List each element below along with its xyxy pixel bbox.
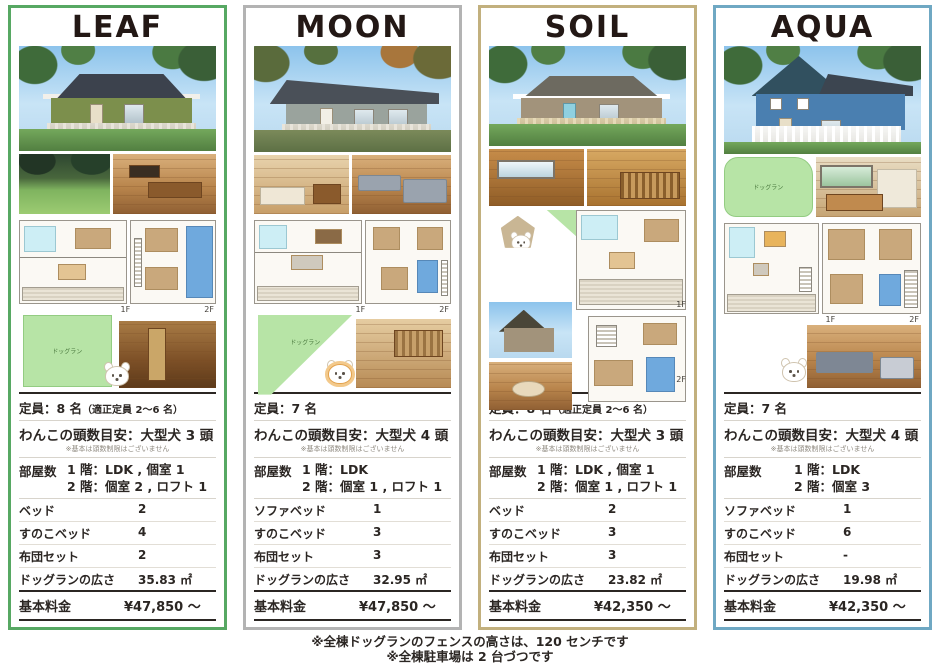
moon-loft-photo	[356, 319, 451, 388]
footer-notes: ※全棟ドッグランのフェンスの高さは、120 センチです ※全棟駐車場は 2 台づ…	[0, 634, 940, 664]
floor-label-2f: 2F	[439, 305, 449, 314]
dog-in-house-mascot-icon	[501, 216, 535, 248]
spec-row-futon: 布団セット2	[19, 545, 216, 568]
plan-table	[58, 264, 86, 280]
gable-window	[797, 98, 809, 110]
rooms-2f: 2 階：個室 2 , ロフト 1	[67, 478, 207, 495]
price-label: 基本料金	[254, 596, 359, 615]
plan-deck	[727, 294, 816, 312]
leaf-exterior-photo	[19, 46, 216, 151]
aqua-living-photo	[807, 325, 921, 388]
floor-label-2f: 2F	[204, 305, 214, 314]
kitchen-window	[820, 165, 873, 189]
rooms-row: 部屋数 1 階：LDK 2 階：個室 1 , ロフト 1	[254, 458, 451, 499]
price-value: ¥42,350 〜	[829, 596, 921, 615]
price-row: 基本料金¥42,350 〜	[489, 590, 686, 621]
wall-tv	[129, 165, 160, 178]
leaf-dogrun-photo	[19, 154, 110, 214]
spec-row-dogrun-size: ドッグランの広さ23.82 ㎡	[489, 568, 686, 591]
plan-deck	[257, 286, 359, 301]
floor-labels: 1F 2F	[19, 304, 216, 314]
plan-bed	[373, 227, 400, 250]
interior-door	[148, 328, 165, 382]
dogs-value: わんこの頭数目安：大型犬 3 頭	[19, 424, 216, 444]
plan-deck	[22, 287, 124, 302]
floor-label-1f: 1F	[356, 305, 366, 314]
lawn-strip	[489, 124, 686, 146]
rooms-1f: 1 階：LDK	[302, 461, 442, 478]
rooms-2f: 2 階：個室 1 , ロフト 1	[537, 478, 677, 495]
spec-row-sunoko: すのこベッド3	[254, 522, 451, 545]
plan-bathroom	[729, 227, 755, 257]
floor-label-1f: 1F	[826, 315, 836, 324]
aqua-exterior-photo	[724, 46, 921, 154]
rooms-label: 部屋数	[489, 461, 537, 495]
plan-bathroom	[24, 226, 56, 252]
round-table	[512, 381, 545, 397]
spec-row-futon: 布団セット-	[724, 545, 921, 568]
dogs-note: ※基本は頭数制限はございません	[19, 444, 216, 456]
card-soil: SOIL ドッグラン	[478, 5, 697, 630]
plan-bed	[879, 229, 912, 259]
rooms-label: 部屋数	[19, 461, 67, 495]
spec-row-sunoko: すのこベッド4	[19, 522, 216, 545]
soil-dining-photo	[489, 362, 572, 410]
aqua-floorplan-1f	[724, 223, 819, 315]
spec-row-bed: ベッド2	[19, 499, 216, 522]
loft-railing	[394, 330, 443, 358]
dogs-row: わんこの頭数目安：大型犬 3 頭※基本は頭数制限はございません	[19, 421, 216, 458]
plan-stairs	[596, 325, 617, 347]
sofa	[816, 352, 873, 373]
capacity-value: 定員：8 名	[19, 401, 82, 416]
cottage-roof	[47, 74, 197, 100]
capacity-row: 定員：7 名	[724, 394, 921, 421]
rooms-2f: 2 階：個室 3	[794, 478, 870, 495]
plan-loft-area	[186, 226, 213, 298]
capacity-value: 定員：7 名	[254, 401, 317, 416]
dogs-note: ※基本は頭数制限はございません	[724, 444, 921, 456]
rooms-values: 1 階：LDK 2 階：個室 3	[794, 461, 870, 495]
aqua-kitchen-photo	[816, 157, 921, 216]
cottage-roof	[270, 80, 439, 104]
footer-note-fence: ※全棟ドッグランのフェンスの高さは、120 センチです	[0, 634, 940, 649]
floor-label-2f: 2F	[909, 315, 919, 324]
spec-row-futon: 布団セット3	[254, 545, 451, 568]
rooms-row: 部屋数 1 階：LDK 2 階：個室 3	[724, 458, 921, 499]
rooms-1f: 1 階：LDK , 個室 1	[537, 461, 677, 478]
dogs-row: わんこの頭数目安：大型犬 4 頭※基本は頭数制限はございません	[254, 421, 451, 458]
moon-floorplan-1f	[254, 220, 362, 304]
plan-bathroom	[581, 215, 618, 240]
dining-set	[313, 184, 341, 204]
soil-exterior-small-photo	[489, 302, 572, 358]
dogs-note: ※基本は頭数制限はございません	[254, 444, 451, 456]
leaf-spec-table: 定員：8 名（適正定員 2〜6 名） わんこの頭数目安：大型犬 3 頭※基本は頭…	[19, 392, 216, 621]
aqua-floorplan-2f	[822, 223, 921, 315]
dog-mascot-icon	[779, 358, 809, 386]
footer-note-parking: ※全棟駐車場は 2 台づつです	[0, 649, 940, 664]
sofa	[358, 175, 402, 192]
plan-bed	[145, 228, 178, 252]
floor-labels: 1F 2F	[724, 314, 921, 324]
plan-loft-area	[879, 274, 900, 306]
card-title-leaf: LEAF	[19, 10, 216, 46]
moon-living-photo	[352, 155, 451, 214]
plan-table	[764, 231, 786, 247]
capacity-row: 定員：8 名（適正定員 2〜6 名）	[19, 394, 216, 421]
house-body	[756, 94, 906, 130]
ground-strip	[724, 142, 921, 154]
rooms-1f: 1 階：LDK , 個室 1	[67, 461, 207, 478]
plan-bed	[75, 228, 111, 249]
plan-bed	[830, 274, 863, 304]
cottage-body	[504, 328, 554, 352]
price-value: ¥47,850 〜	[359, 596, 451, 615]
price-label: 基本料金	[724, 596, 829, 615]
price-label: 基本料金	[489, 596, 594, 615]
dogs-value: わんこの頭数目安：大型犬 4 頭	[724, 424, 921, 444]
moon-floorplan-2f	[365, 220, 451, 304]
interior-window	[497, 160, 556, 179]
price-value: ¥42,350 〜	[594, 596, 686, 615]
rooms-row: 部屋数 1 階：LDK , 個室 1 2 階：個室 2 , ロフト 1	[19, 458, 216, 499]
floor-label-2f: 2F	[676, 375, 686, 384]
soil-floorplan-1f	[576, 210, 686, 310]
floor-label-1f: 1F	[121, 305, 131, 314]
dogs-value: わんこの頭数目安：大型犬 3 頭	[489, 424, 686, 444]
spec-row-dogrun-size: ドッグランの広さ19.98 ㎡	[724, 568, 921, 591]
leaf-dogrun-plan: ドッグラン	[23, 315, 112, 387]
plan-bed	[417, 227, 444, 250]
plan-kitchen	[291, 255, 323, 270]
spec-row-bed: ベッド2	[489, 499, 686, 522]
dogs-row: わんこの頭数目安：大型犬 4 頭※基本は頭数制限はございません	[724, 421, 921, 458]
card-title-aqua: AQUA	[724, 10, 921, 46]
card-title-moon: MOON	[254, 10, 451, 46]
sofa	[403, 179, 447, 203]
plan-kitchen	[753, 263, 770, 276]
spec-row-dogrun-size: ドッグランの広さ35.83 ㎡	[19, 568, 216, 591]
dogrun-plan-label: ドッグラン	[290, 337, 320, 346]
plan-bed	[643, 323, 678, 345]
dogrun-plan-label: ドッグラン	[52, 347, 82, 356]
card-aqua: AQUA ドッグラン	[713, 5, 932, 630]
card-title-soil: SOIL	[489, 10, 686, 46]
dogs-value: わんこの頭数目安：大型犬 4 頭	[254, 424, 451, 444]
plan-wall	[20, 257, 126, 258]
spec-row-dogrun-size: ドッグランの広さ32.95 ㎡	[254, 568, 451, 591]
price-row: 基本料金¥42,350 〜	[724, 590, 921, 621]
soil-loft-photo	[587, 149, 686, 205]
house-roof	[819, 74, 914, 96]
rooms-2f: 2 階：個室 1 , ロフト 1	[302, 478, 442, 495]
dog-mascot-icon	[325, 360, 355, 388]
gable-window	[770, 98, 782, 110]
moon-kitchen-photo	[254, 155, 349, 214]
rooms-label: 部屋数	[724, 461, 772, 495]
lawn-strip	[19, 129, 216, 151]
ground-strip	[254, 130, 451, 152]
soil-floorplan-2f	[588, 316, 687, 402]
plan-stairs	[799, 267, 812, 292]
rooms-values: 1 階：LDK , 個室 1 2 階：個室 2 , ロフト 1	[67, 461, 207, 495]
plan-bed	[381, 267, 408, 290]
aqua-dogrun-plan: ドッグラン	[724, 157, 813, 216]
rooms-values: 1 階：LDK 2 階：個室 1 , ロフト 1	[302, 461, 442, 495]
cottage-comparison-row: LEAF	[8, 5, 932, 630]
plan-deck	[579, 279, 683, 304]
plan-wall	[255, 252, 361, 253]
dogs-note: ※基本は頭数制限はございません	[489, 444, 686, 456]
card-leaf: LEAF	[8, 5, 227, 630]
plan-bed	[644, 219, 679, 243]
plan-stairs	[134, 238, 142, 287]
soil-interior-photo	[489, 149, 584, 205]
cottage-roof	[517, 76, 667, 96]
dining-table	[826, 194, 883, 211]
price-row: 基本料金¥47,850 〜	[19, 590, 216, 621]
rooms-values: 1 階：LDK , 個室 1 2 階：個室 1 , ロフト 1	[537, 461, 677, 495]
aqua-spec-table: 定員：7 名 わんこの頭数目安：大型犬 4 頭※基本は頭数制限はございません 部…	[724, 392, 921, 621]
dogs-row: わんこの頭数目安：大型犬 3 頭※基本は頭数制限はございません	[489, 421, 686, 458]
moon-exterior-photo	[254, 46, 451, 152]
capacity-value: 定員：7 名	[724, 401, 787, 416]
leaf-dining-photo	[113, 154, 216, 214]
dog-mascot-icon	[102, 362, 132, 390]
moon-spec-table: 定員：7 名 わんこの頭数目安：大型犬 4 頭※基本は頭数制限はございません 部…	[254, 392, 451, 621]
price-row: 基本料金¥47,850 〜	[254, 590, 451, 621]
loft-railing	[620, 172, 680, 199]
spec-row-futon: 布団セット3	[489, 545, 686, 568]
spec-row-sunoko: すのこベッド6	[724, 522, 921, 545]
price-label: 基本料金	[19, 596, 124, 615]
floor-label-1f: 1F	[676, 300, 686, 309]
kitchen-counter	[260, 187, 305, 205]
plan-stairs	[441, 260, 449, 296]
plan-stairs	[904, 270, 918, 308]
soil-exterior-photo	[489, 46, 686, 146]
plan-table	[315, 229, 343, 244]
dining-table	[148, 182, 202, 198]
sofa	[880, 357, 914, 380]
rooms-label: 部屋数	[254, 461, 302, 495]
plan-loft-area	[417, 260, 439, 293]
spec-row-sunoko: すのこベッド3	[489, 522, 686, 545]
plan-bathroom	[259, 225, 287, 250]
plan-loft-area	[646, 357, 675, 392]
spec-row-sofabed: ソファベッド1	[724, 499, 921, 522]
dogrun-plan-label: ドッグラン	[753, 183, 783, 192]
rooms-1f: 1 階：LDK	[794, 461, 870, 478]
plan-bed	[145, 267, 178, 290]
leaf-hallway-photo	[119, 321, 216, 388]
card-moon: MOON	[243, 5, 462, 630]
capacity-note: （適正定員 2〜6 名）	[82, 405, 183, 416]
rooms-row: 部屋数 1 階：LDK , 個室 1 2 階：個室 1 , ロフト 1	[489, 458, 686, 499]
floor-labels: 1F 2F	[254, 304, 451, 314]
spec-row-sofabed: ソファベッド1	[254, 499, 451, 522]
plan-bed	[828, 229, 865, 259]
plan-table	[609, 252, 635, 270]
plan-bed	[594, 360, 633, 385]
capacity-row: 定員：7 名	[254, 394, 451, 421]
leaf-floorplan-1f	[19, 220, 127, 304]
price-value: ¥47,850 〜	[124, 596, 216, 615]
leaf-floorplan-2f	[130, 220, 216, 304]
soil-spec-table: 定員：8 名（適正定員 2〜6 名） わんこの頭数目安：大型犬 3 頭※基本は頭…	[489, 392, 686, 621]
